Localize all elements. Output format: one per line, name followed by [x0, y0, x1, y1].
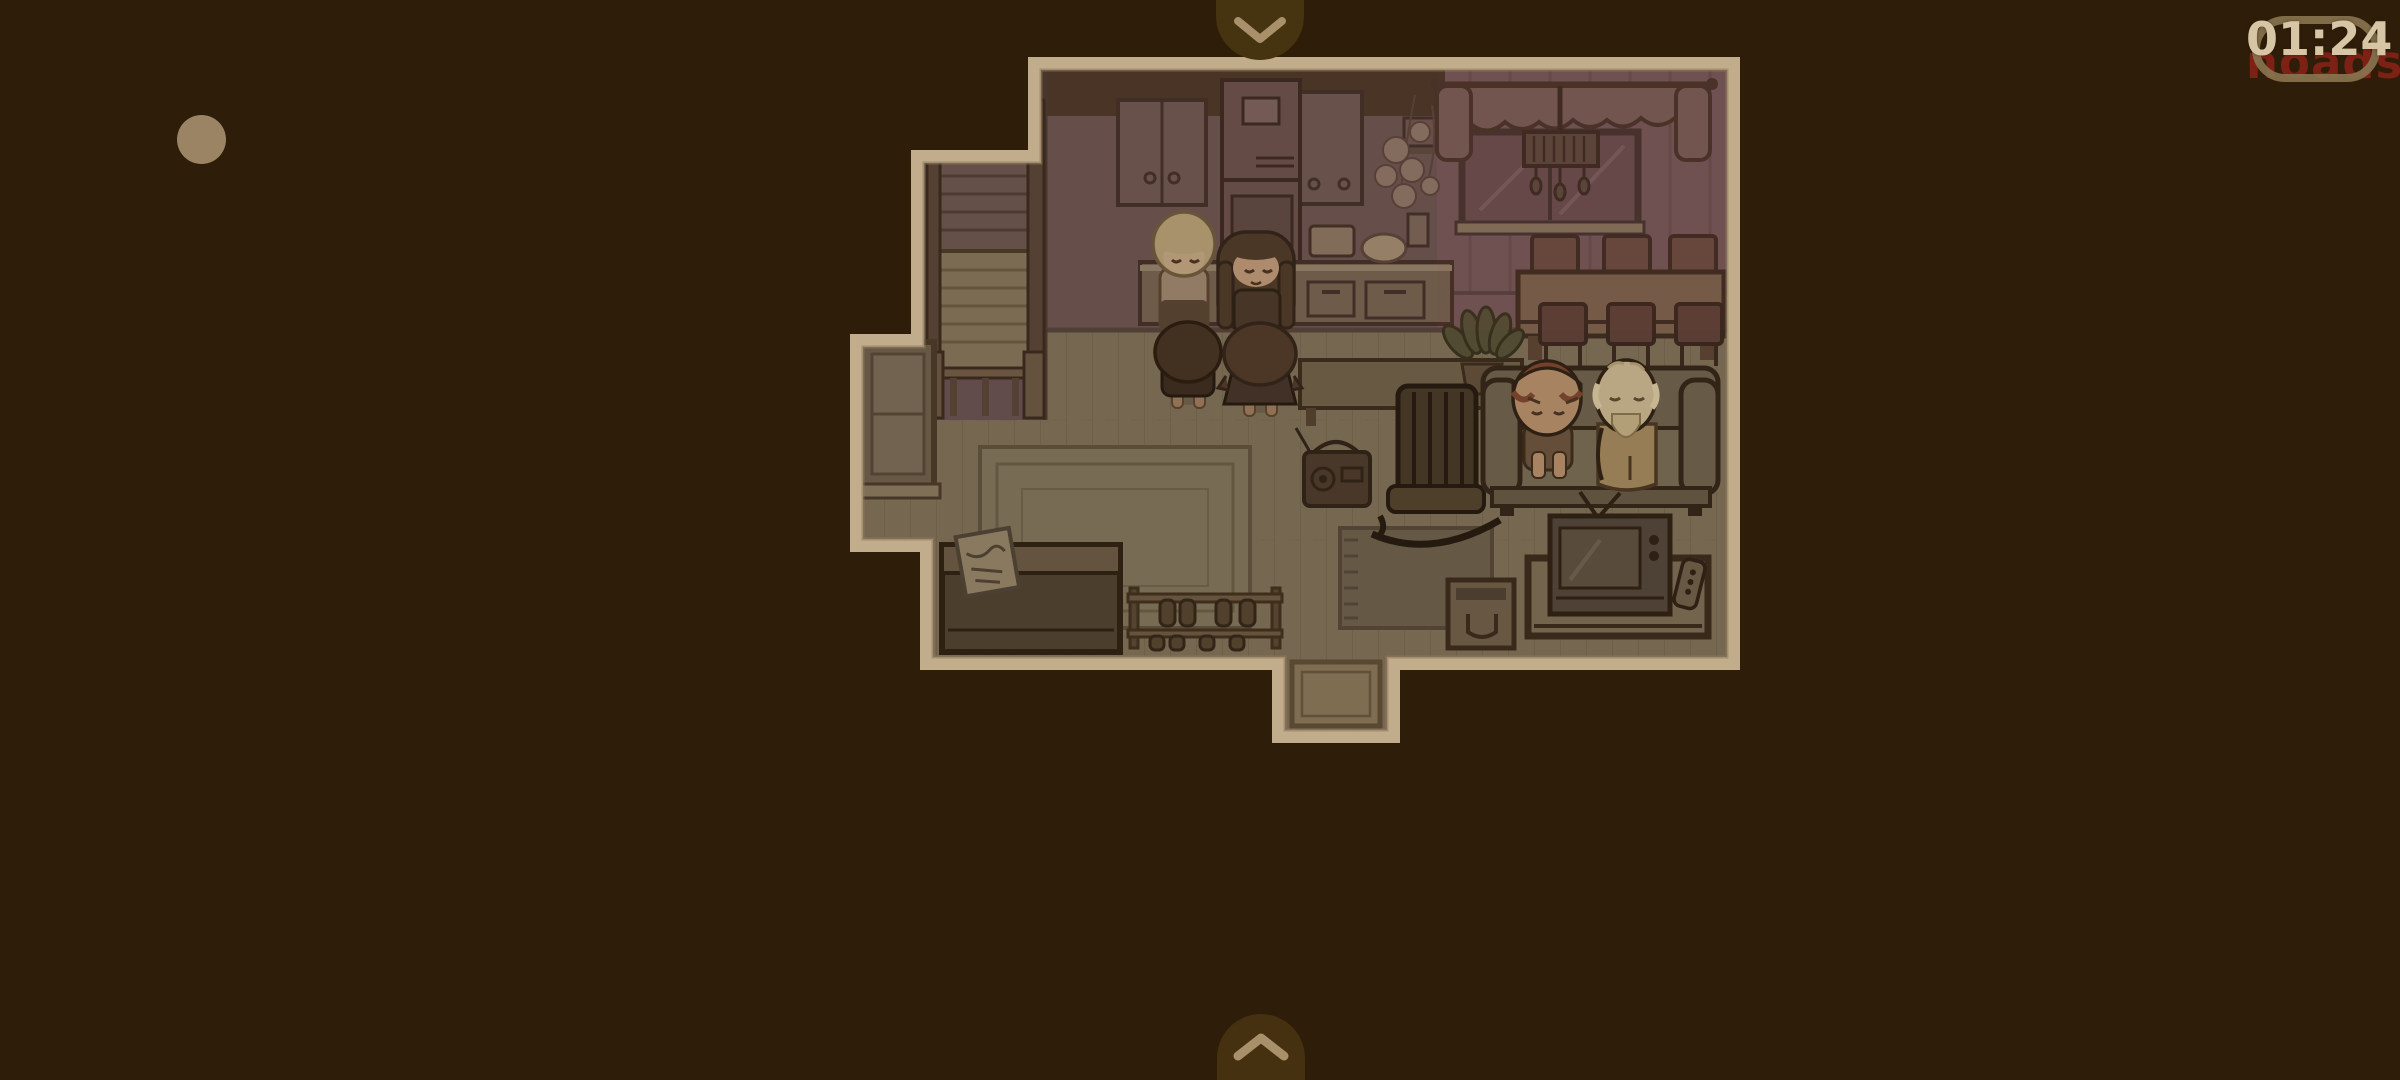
dining-glow: [1437, 70, 1727, 330]
timer-value: 01:24: [2246, 16, 2388, 62]
screen: noads 01:24: [0, 0, 2400, 1080]
timer-widget: noads 01:24: [2246, 8, 2396, 94]
chevron-up-icon: [1232, 1032, 1290, 1062]
chevron-down-icon: [1232, 15, 1288, 45]
corner-dot-button[interactable]: [177, 115, 226, 164]
game-viewport[interactable]: [0, 0, 2400, 1080]
